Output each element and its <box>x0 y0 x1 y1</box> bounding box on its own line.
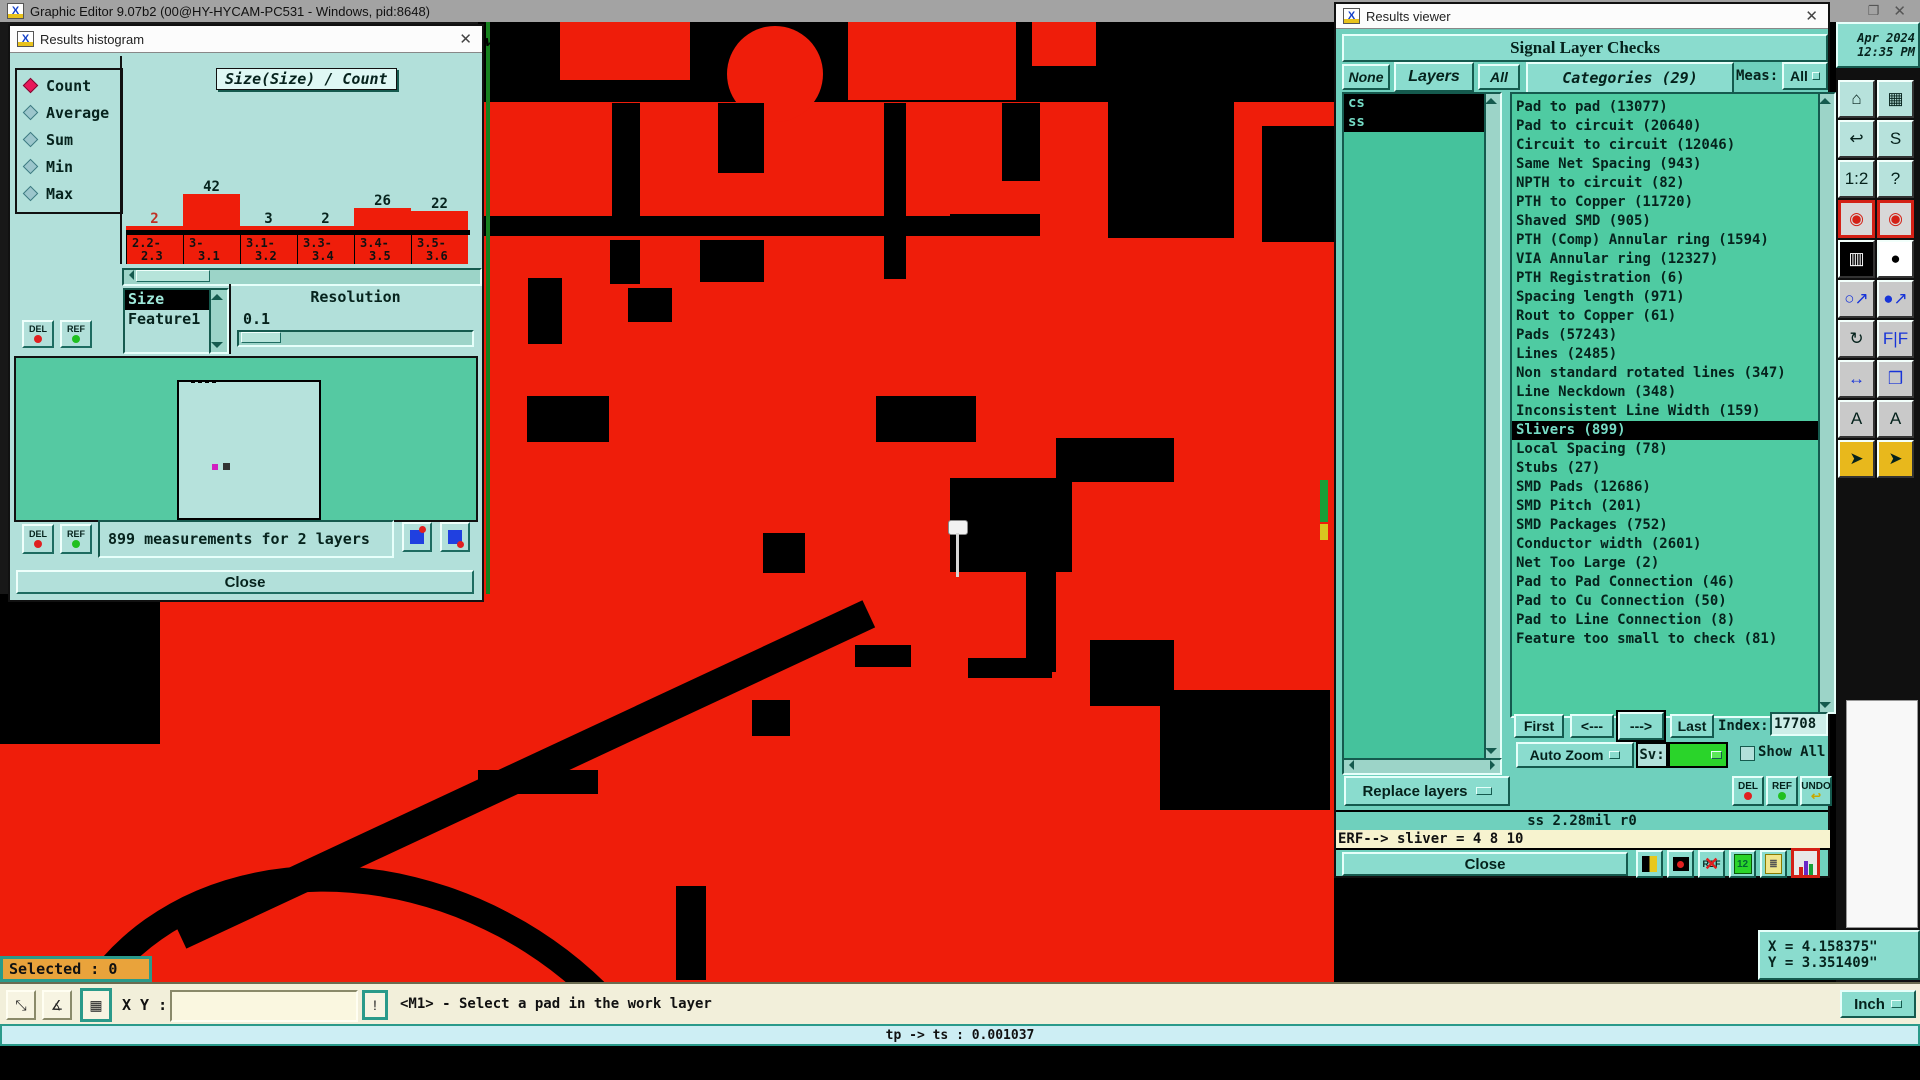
category-label: Local Spacing (78) <box>1516 441 1668 457</box>
stat-radio[interactable]: Max <box>17 180 121 207</box>
last-button[interactable]: Last <box>1670 714 1714 738</box>
toolbar-icon-button[interactable]: S <box>1877 120 1914 158</box>
show-all-label: Show All <box>1758 744 1825 760</box>
bar-count-label: 22 <box>431 197 448 211</box>
minimap-panel <box>14 356 478 522</box>
histogram-bar-icon <box>1799 867 1803 875</box>
field-list[interactable]: Size Feature1 <box>123 288 211 354</box>
meas-dropdown[interactable]: All <box>1782 62 1828 90</box>
toolbar-icon-glyph: ↔ <box>1848 369 1865 389</box>
category-row[interactable]: Inconsistent Line Width (159) <box>1512 402 1818 421</box>
window-mode-button[interactable]: ▦ <box>80 988 112 1022</box>
replace-layers-dropdown[interactable]: Replace layers <box>1344 776 1510 806</box>
scroll-right-icon[interactable] <box>1490 760 1500 770</box>
toolbar-icon-glyph: ◉ <box>1888 209 1903 229</box>
auto-zoom-dropdown[interactable]: Auto Zoom <box>1516 742 1634 768</box>
scroll-up-icon[interactable] <box>1485 92 1497 104</box>
category-row[interactable]: PTH (Comp) Annular ring (1594) <box>1512 231 1818 250</box>
stat-radio[interactable]: Min <box>17 153 121 180</box>
category-row[interactable]: VIA Annular ring (12327) <box>1512 250 1818 269</box>
stat-radio[interactable]: Count <box>17 72 121 99</box>
selected-badge: Selected : 0 <box>0 956 152 982</box>
scroll-thumb[interactable] <box>136 270 210 282</box>
trace-clearance <box>1056 438 1174 482</box>
door-icon-button[interactable] <box>1636 850 1663 878</box>
ref-button[interactable]: REF <box>1766 776 1798 806</box>
category-label: Lines (2485) <box>1516 346 1617 362</box>
selected-sliver-marker <box>956 533 959 577</box>
trace-clearance <box>1160 690 1330 810</box>
category-row[interactable]: Slivers (899) <box>1512 421 1818 440</box>
page-12-icon-button[interactable]: 12 <box>1729 850 1756 878</box>
trace-clearance <box>950 478 1072 572</box>
toolbar-icon-button[interactable]: F|F <box>1877 320 1914 358</box>
toolbar-icon-button[interactable]: A <box>1877 400 1914 438</box>
category-row[interactable]: Lines (2485) <box>1512 345 1818 364</box>
trace-clearance <box>610 240 640 284</box>
trace-clearance <box>1262 126 1334 242</box>
category-label: Spacing length (971) <box>1516 289 1685 305</box>
resolution-panel: Resolution 0.1 <box>229 284 480 354</box>
toolbar-icon-glyph: ◉ <box>1849 209 1864 229</box>
toolbar-icon-glyph: A <box>1851 409 1862 429</box>
erf-bar: ERF--> sliver = 4 8 10 <box>1336 830 1830 850</box>
histogram-title: Results histogram <box>40 32 144 47</box>
bar-count-label: 3 <box>264 212 272 226</box>
prev-label: <--- <box>1581 718 1603 734</box>
toolbar-icon-glyph: ▦ <box>1887 89 1903 109</box>
results-viewer-window: X Results viewer ✕ Signal Layer Checks N… <box>1334 2 1830 878</box>
sv-label: Sv: <box>1639 747 1664 763</box>
category-row[interactable]: Line Neckdown (348) <box>1512 383 1818 402</box>
display-dot-icon-button[interactable] <box>1667 850 1694 878</box>
layer-label: cs <box>1348 95 1365 111</box>
category-row[interactable]: Conductor width (2601) <box>1512 535 1818 554</box>
angle-mode-button[interactable]: ∡ <box>42 990 72 1020</box>
categories-scrollbar[interactable] <box>1818 92 1836 714</box>
category-label: Same Net Spacing (943) <box>1516 156 1701 172</box>
xy-label: X Y : <box>122 996 167 1014</box>
trace-clearance <box>676 886 706 980</box>
histogram-bars: 242322622 <box>126 144 470 235</box>
toolbar-icon-glyph: ➤ <box>1849 449 1863 469</box>
green-led-icon <box>72 540 80 548</box>
axis-bin-label: 3.5-3.6 <box>411 235 468 264</box>
coordinates-box: X = 4.158375" Y = 3.351409" <box>1758 930 1920 980</box>
undo-button[interactable]: UNDO↩ <box>1800 776 1832 806</box>
histogram-bar: 42 <box>183 144 240 230</box>
measurements-text: 899 measurements for 2 layers <box>108 530 370 548</box>
notes-icon-button[interactable]: ≣ <box>1760 850 1787 878</box>
category-label: Slivers (899) <box>1516 422 1626 438</box>
scroll-up-icon[interactable] <box>1819 92 1831 104</box>
scroll-left-icon[interactable] <box>1344 760 1354 770</box>
category-label: Pad to Line Connection (8) <box>1516 612 1735 628</box>
del-label: DEL <box>29 325 47 334</box>
minimap-tickmarks <box>191 380 217 383</box>
minimap-dot-dark <box>223 463 230 470</box>
prompt-message: <M1> - Select a pad in the work layer <box>400 996 712 1012</box>
notes-icon: ≣ <box>1765 854 1782 874</box>
trace-clearance <box>718 103 764 173</box>
del-label: DEL <box>1738 782 1758 791</box>
toolbar-icon-button[interactable]: ▦ <box>1877 80 1914 118</box>
dropdown-dash-icon <box>1812 72 1820 80</box>
layer-row[interactable]: cs <box>1344 94 1484 113</box>
toolbar-icon-button[interactable]: ? <box>1877 160 1914 198</box>
category-label: Circuit to circuit (12046) <box>1516 137 1735 153</box>
category-row[interactable]: Rout to Copper (61) <box>1512 307 1818 326</box>
toolbar-icon-button[interactable]: ● <box>1877 240 1914 278</box>
ref-label: REF <box>1772 782 1792 791</box>
category-label: SMD Packages (752) <box>1516 517 1668 533</box>
category-label: Pad to Cu Connection (50) <box>1516 593 1727 609</box>
auto-zoom-label: Auto Zoom <box>1530 747 1604 763</box>
category-row[interactable]: Spacing length (971) <box>1512 288 1818 307</box>
category-row[interactable]: Feature too small to check (81) <box>1512 630 1818 649</box>
category-row[interactable]: SMD Pads (12686) <box>1512 478 1818 497</box>
rv-status-text: ss 2.28mil r0 <box>1527 813 1637 829</box>
histogram-bar: 2 <box>297 144 354 230</box>
category-label: PTH (Comp) Annular ring (1594) <box>1516 232 1769 248</box>
red-led-icon <box>1744 792 1752 800</box>
coordinate-y: Y = 3.351409" <box>1768 955 1918 971</box>
toolbar-icon-glyph: ▥ <box>1848 249 1864 269</box>
xy-input[interactable] <box>170 990 358 1022</box>
del-button[interactable]: DEL <box>22 320 54 348</box>
category-label: Feature too small to check (81) <box>1516 631 1777 647</box>
category-row[interactable]: NPTH to circuit (82) <box>1512 174 1818 193</box>
stat-label: Sum <box>46 131 73 149</box>
toolbar-icon-glyph: A <box>1890 409 1901 429</box>
category-label: Net Too Large (2) <box>1516 555 1659 571</box>
window-logo-icon: X <box>1343 8 1360 24</box>
category-row[interactable]: Pad to Pad Connection (46) <box>1512 573 1818 592</box>
layer2-icon <box>448 530 462 544</box>
layer-view-1-button[interactable] <box>402 522 432 552</box>
trace-clearance <box>628 288 672 322</box>
field-label: Size <box>128 290 164 308</box>
next-label: ---> <box>1630 718 1652 734</box>
category-row[interactable]: Local Spacing (78) <box>1512 440 1818 459</box>
categories-header-label: Categories (29) <box>1562 69 1697 87</box>
toolbar-icon-button[interactable]: ○↗ <box>1838 280 1875 318</box>
results-viewer-title: Results viewer <box>1366 9 1451 24</box>
sliver-green <box>1320 480 1328 522</box>
del-button[interactable]: DEL <box>22 524 54 554</box>
category-label: SMD Pads (12686) <box>1516 479 1651 495</box>
stat-label: Average <box>46 104 109 122</box>
trace-clearance <box>968 658 1052 678</box>
datetime-panel: Apr 2024 12:35 PM <box>1836 22 1920 68</box>
chart-title: Size(Size) / Count <box>225 70 388 88</box>
red-dot-display-icon <box>1673 857 1689 871</box>
trace-clearance <box>950 214 1040 236</box>
axis-bin-label: 3-3.1 <box>183 235 240 264</box>
pad-rect-1 <box>560 22 690 80</box>
dropdown-dash-icon <box>1476 787 1492 795</box>
toolbar-icon-button[interactable]: ⌂ <box>1838 80 1875 118</box>
category-label: SMD Pitch (201) <box>1516 498 1642 514</box>
category-label: PTH Registration (6) <box>1516 270 1685 286</box>
field-row[interactable]: Feature1 <box>125 310 209 330</box>
ref-off-icon-button[interactable]: REF ✕ <box>1698 850 1725 878</box>
app-logo-icon: X <box>7 3 24 19</box>
chart-title-box: Size(Size) / Count <box>216 68 397 90</box>
category-label: Non standard rotated lines (347) <box>1516 365 1786 381</box>
trace-clearance <box>884 103 906 279</box>
first-button[interactable]: First <box>1514 714 1564 738</box>
toolbar-icon-glyph: ⌂ <box>1851 89 1861 109</box>
index-value: 17708 <box>1774 716 1816 732</box>
ref-button[interactable]: REF <box>60 524 92 554</box>
category-label: PTH to Copper (11720) <box>1516 194 1693 210</box>
trace-clearance <box>700 240 764 282</box>
dropdown-dash-icon <box>1711 751 1722 759</box>
alert-label: ! <box>373 997 377 1013</box>
trace-clearance <box>1108 22 1234 238</box>
snap-mode-button[interactable]: ⤡ <box>6 990 36 1020</box>
stat-radio[interactable]: Average <box>17 99 121 126</box>
layers-list[interactable]: cs ss <box>1342 92 1486 760</box>
field-row[interactable]: Size <box>125 290 209 310</box>
meas-value: All <box>1790 68 1808 84</box>
category-label: Stubs (27) <box>1516 460 1600 476</box>
radio-diamond-icon <box>23 105 39 121</box>
trace-clearance <box>1026 572 1056 672</box>
radio-diamond-icon <box>23 78 39 94</box>
toolbar-icon-glyph: S <box>1890 129 1901 149</box>
close-icon[interactable]: ✕ <box>1893 2 1906 20</box>
tab-layers-label: Layers <box>1408 68 1460 86</box>
results-viewer-titlebar[interactable]: X Results viewer ✕ <box>1336 4 1828 29</box>
histogram-titlebar[interactable]: X Results histogram ✕ <box>10 26 482 53</box>
histogram-bar: 22 <box>411 144 468 230</box>
trace-clearance <box>1002 103 1040 181</box>
toolbar-icon-button[interactable]: ↩ <box>1838 120 1875 158</box>
replace-layers-label: Replace layers <box>1362 783 1467 800</box>
tab-none-label: None <box>1349 69 1384 85</box>
command-bar: ⤡ ∡ ▦ X Y : ! <M1> - Select a pad in the… <box>0 982 1920 1026</box>
trace-clearance <box>527 396 609 442</box>
toolbar-icon-button[interactable]: ◉ <box>1877 200 1914 238</box>
close-icon[interactable]: ✕ <box>459 30 472 48</box>
category-label: Line Neckdown (348) <box>1516 384 1676 400</box>
toolbar-icon-button[interactable]: ●↗ <box>1877 280 1914 318</box>
radio-diamond-icon <box>23 186 39 202</box>
toolbar-icon-glyph: ↻ <box>1849 329 1863 349</box>
layers-scrollbar[interactable] <box>1484 92 1502 760</box>
trace-clearance <box>752 700 790 736</box>
histogram-bar: 26 <box>354 144 411 230</box>
show-all-checkbox[interactable] <box>1740 746 1755 761</box>
category-label: Pad to circuit (20640) <box>1516 118 1701 134</box>
toolbar-icon-glyph: ○↗ <box>1844 289 1869 309</box>
slider-thumb[interactable] <box>241 332 281 343</box>
tab-layers[interactable]: Layers <box>1394 62 1474 92</box>
field-scrollbar[interactable] <box>209 288 229 354</box>
category-row[interactable]: Circuit to circuit (12046) <box>1512 136 1818 155</box>
floating-white-panel <box>1846 700 1918 928</box>
toolbar-icon-glyph: ? <box>1891 169 1900 189</box>
category-label: Conductor width (2601) <box>1516 536 1701 552</box>
histogram-bar-icon <box>1809 864 1813 875</box>
selected-text: Selected : 0 <box>9 960 117 978</box>
date-label: Apr 2024 <box>1857 31 1915 45</box>
category-label: Pad to pad (13077) <box>1516 99 1668 115</box>
category-row[interactable]: Pad to Line Connection (8) <box>1512 611 1818 630</box>
del-button[interactable]: DEL <box>1732 776 1764 806</box>
tab-all[interactable]: All <box>1478 64 1520 90</box>
toolbar-icon-button[interactable]: ➤ <box>1838 440 1875 478</box>
pad-rect-2 <box>848 22 1016 100</box>
del-label: DEL <box>29 530 47 539</box>
info-bar: tp -> ts : 0.001037 <box>0 1024 1920 1046</box>
tab-none[interactable]: None <box>1342 64 1390 90</box>
profile-line <box>486 22 490 594</box>
ref-button[interactable]: REF <box>60 320 92 348</box>
resolution-label: Resolution <box>231 288 480 306</box>
window-logo-icon: X <box>17 31 34 47</box>
category-row[interactable]: Non standard rotated lines (347) <box>1512 364 1818 383</box>
radio-diamond-icon <box>23 132 39 148</box>
header-label: Signal Layer Checks <box>1510 38 1660 58</box>
units-label: Inch <box>1854 996 1885 1013</box>
undo-arrow-icon: ↩ <box>1811 791 1821 801</box>
trace-clearance <box>528 278 562 344</box>
histogram-bar-icon <box>1804 861 1808 875</box>
red-led-icon <box>34 540 42 548</box>
last-label: Last <box>1678 718 1707 734</box>
stat-label: Max <box>46 185 73 203</box>
axis-bin-label: 2.2-2.3 <box>126 235 183 264</box>
toolbar-icon-glyph: ●↗ <box>1883 289 1908 309</box>
units-dropdown[interactable]: Inch <box>1840 990 1916 1018</box>
category-row[interactable]: Pad to Cu Connection (50) <box>1512 592 1818 611</box>
index-label: Index: <box>1718 718 1769 734</box>
category-label: Pad to Pad Connection (46) <box>1516 574 1735 590</box>
copper-main <box>478 100 1334 1046</box>
bar-count-label: 26 <box>374 194 391 208</box>
clearance-bl <box>0 594 160 744</box>
trace-clearance <box>855 645 911 667</box>
toolbar-icon-glyph: ➤ <box>1888 449 1902 469</box>
toolbar-icon-glyph: 1:2 <box>1845 169 1869 189</box>
pad-rect-3 <box>1032 22 1096 66</box>
resolution-slider[interactable] <box>237 330 474 347</box>
toolbar-icon-glyph: ❒ <box>1888 369 1903 389</box>
prev-button[interactable]: <--- <box>1570 714 1614 738</box>
radio-diamond-icon <box>23 159 39 175</box>
layer-row[interactable]: ss <box>1344 113 1484 132</box>
close-label: Close <box>225 574 266 591</box>
category-row[interactable]: PTH to Copper (11720) <box>1512 193 1818 212</box>
dropdown-dash-icon <box>1609 751 1620 759</box>
measurements-field: 899 measurements for 2 layers <box>98 520 394 558</box>
green-led-icon <box>72 335 80 343</box>
category-row[interactable]: Same Net Spacing (943) <box>1512 155 1818 174</box>
category-row[interactable]: Pad to circuit (20640) <box>1512 117 1818 136</box>
layer-view-2-button[interactable] <box>440 522 470 552</box>
sliver-yellow <box>1320 524 1328 540</box>
axis-bin-label: 3.4-3.5 <box>354 235 411 264</box>
results-histogram-window: X Results histogram ✕ Count Average Sum <box>8 24 484 602</box>
category-row[interactable]: Stubs (27) <box>1512 459 1818 478</box>
toolbar-icon-button[interactable]: ↔ <box>1838 360 1875 398</box>
categories-list[interactable]: Pad to pad (13077) Pad to circuit (20640… <box>1510 92 1820 718</box>
main-window-title: Graphic Editor 9.07b2 (00@HY-HYCAM-PC531… <box>30 4 430 19</box>
stats-panel: Count Average Sum Min <box>15 68 123 214</box>
toolbar-icon-button[interactable]: ❒ <box>1877 360 1914 398</box>
close-label: Close <box>1465 856 1506 873</box>
category-row[interactable]: Net Too Large (2) <box>1512 554 1818 573</box>
category-row[interactable]: Shaved SMD (905) <box>1512 212 1818 231</box>
toolbar-icon-button[interactable]: A <box>1838 400 1875 438</box>
histogram-icon-button[interactable] <box>1791 848 1820 878</box>
restore-icon[interactable]: ❐ <box>1868 3 1880 19</box>
index-field[interactable]: 17708 <box>1770 712 1828 736</box>
sv-color-dropdown[interactable] <box>1668 742 1728 768</box>
dropdown-dash-icon <box>1891 1000 1902 1008</box>
bar-count-label: 2 <box>321 212 329 226</box>
category-label: Shaved SMD (905) <box>1516 213 1651 229</box>
category-row[interactable]: SMD Pitch (201) <box>1512 497 1818 516</box>
category-row[interactable]: SMD Packages (752) <box>1512 516 1818 535</box>
stat-label: Min <box>46 158 73 176</box>
toolbar-icon-button[interactable]: ↻ <box>1838 320 1875 358</box>
scroll-down-icon[interactable] <box>211 342 223 354</box>
minimap[interactable] <box>177 380 321 520</box>
close-icon[interactable]: ✕ <box>1805 7 1818 25</box>
histogram-bar: 3 <box>240 144 297 230</box>
scroll-up-icon[interactable] <box>211 288 223 300</box>
toolbar-icon-glyph: ● <box>1890 249 1900 269</box>
toolbar-icon-button[interactable]: ▥ <box>1838 240 1875 278</box>
scroll-left-icon[interactable] <box>124 270 134 280</box>
ref-label: REF <box>67 530 85 539</box>
layers-hscrollbar[interactable] <box>1342 758 1502 775</box>
coordinate-x: X = 4.158375" <box>1768 939 1918 955</box>
stat-radio[interactable]: Sum <box>17 126 121 153</box>
category-row[interactable]: Pad to pad (13077) <box>1512 98 1818 117</box>
next-button[interactable]: ---> <box>1618 712 1664 740</box>
layer-label: ss <box>1348 114 1365 130</box>
resolution-value: 0.1 <box>243 310 480 328</box>
side-toolbar: ⌂ ▦ ↩ S 1:2 ? ◉ ◉ ▥ ● ○↗ ●↗ <box>1838 80 1918 478</box>
histogram-axis: 2.2-2.33-3.13.1-3.23.3-3.43.4-3.53.5-3.6 <box>126 235 470 264</box>
ref-label: REF <box>67 325 85 334</box>
toolbar-icon-button[interactable]: ➤ <box>1877 440 1914 478</box>
sv-label-box: Sv: <box>1636 742 1668 768</box>
categories-header: Categories (29) <box>1526 62 1734 94</box>
results-viewer-close-button[interactable]: Close <box>1342 852 1628 876</box>
category-row[interactable]: PTH Registration (6) <box>1512 269 1818 288</box>
histogram-close-button[interactable]: Close <box>16 570 474 594</box>
right-panel: Apr 2024 12:35 PM ⌂ ▦ ↩ S 1:2 ? ◉ ◉ ▥ <box>1836 22 1920 1024</box>
category-row[interactable]: Pads (57243) <box>1512 326 1818 345</box>
trace-clearance <box>763 533 805 573</box>
alert-button[interactable]: ! <box>362 990 388 1020</box>
axis-bin-label: 3.1-3.2 <box>240 235 297 264</box>
info-text: tp -> ts : 0.001037 <box>886 1028 1035 1043</box>
toolbar-icon-button[interactable]: 1:2 <box>1838 160 1875 198</box>
stat-label: Count <box>46 77 91 95</box>
toolbar-icon-button[interactable]: ◉ <box>1838 200 1875 238</box>
time-label: 12:35 PM <box>1857 45 1915 59</box>
red-x-icon: ✕ <box>1704 855 1719 873</box>
minimap-dot-magenta <box>212 464 218 470</box>
rv-status-bar: ss 2.28mil r0 <box>1336 810 1828 832</box>
